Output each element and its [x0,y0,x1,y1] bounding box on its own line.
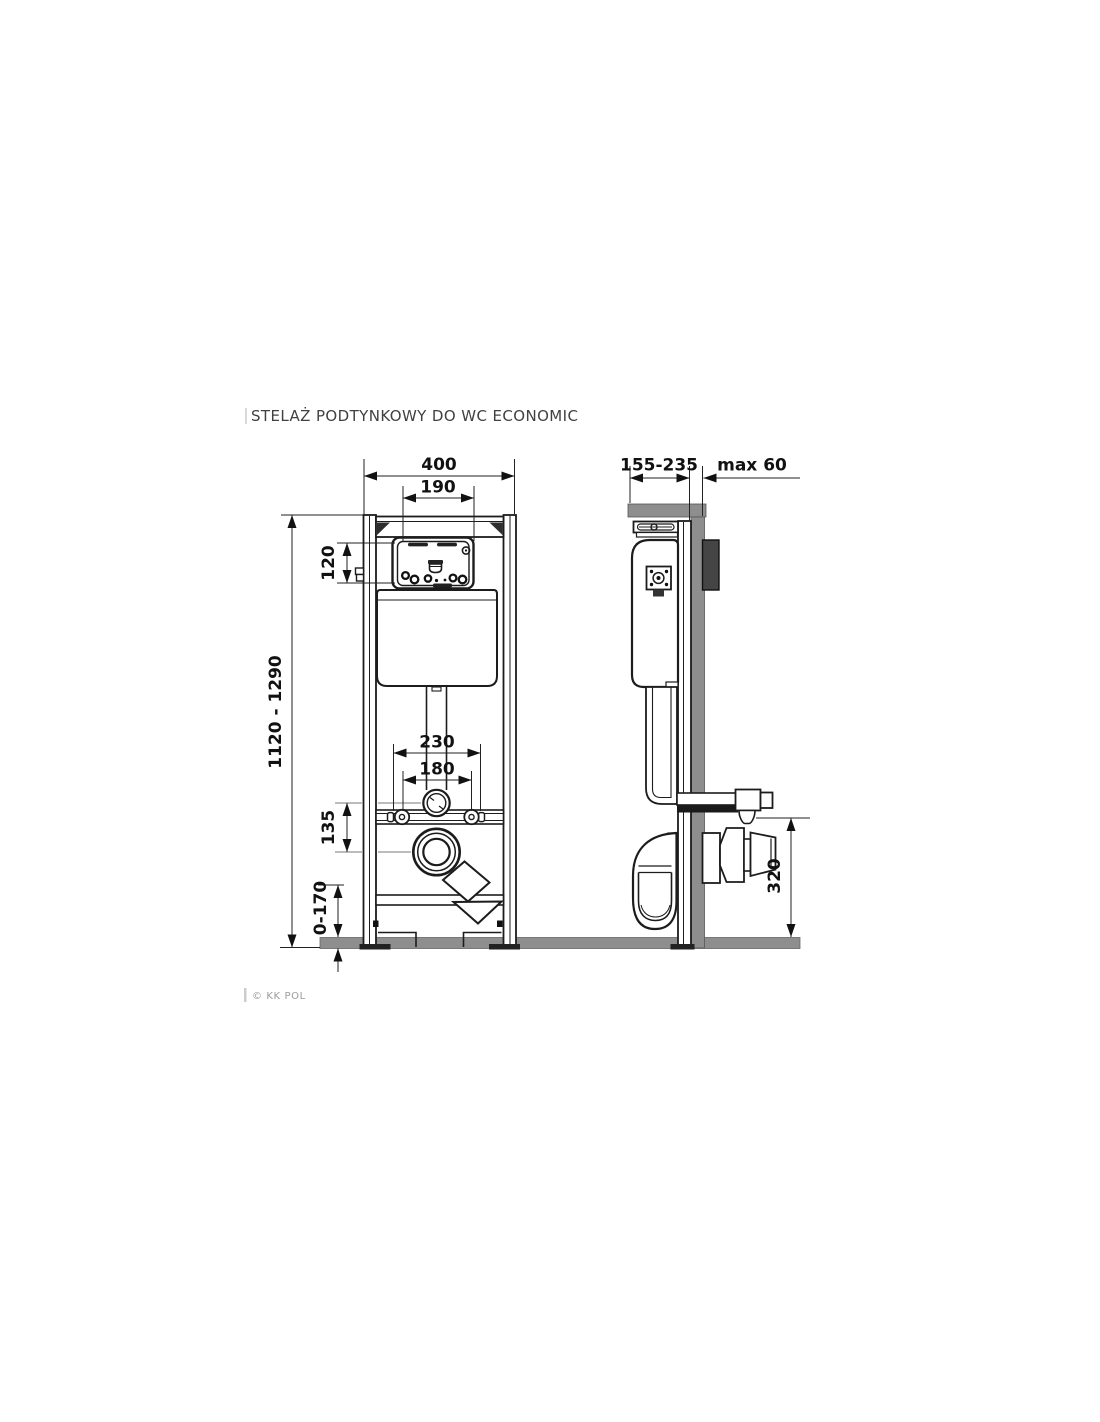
dim-pipe-offset: 135 [319,803,352,852]
flush-valve [428,560,443,573]
dim-panel-width-label: 190 [420,478,456,498]
dim-panel-height-label: 120 [319,545,339,581]
dim-frame-height-label: 1120 - 1290 [266,655,286,769]
dim-outlet-height-label: 320 [765,858,785,894]
inspection-panel [393,538,474,589]
copyright-margin-mark [244,988,247,1002]
page-background [0,0,1100,1422]
technical-drawing: STELAŻ PODTYNKOWY DO WC ECONOMIC [0,0,1100,1422]
panel-slot-right [437,543,457,547]
copyright: © KK POL [252,991,306,1002]
side-cistern [632,540,678,687]
top-rail-bracket [634,522,679,538]
title-margin-mark [245,408,247,424]
ceiling-bracket [628,504,706,517]
panel-bottom-bar [433,584,452,588]
rail-clip [356,568,364,581]
side-frame-rail [678,521,691,948]
wall-bracket-block [703,540,720,590]
dim-leg-adjustment-label: 0-170 [311,881,331,936]
dim-outer-bolt-spacing-label: 230 [419,733,455,753]
drain-outlet [413,829,459,875]
dim-overall-width-label: 400 [421,455,457,475]
dim-pipe-offset-label: 135 [319,810,339,846]
dim-wall-offset-label: max 60 [717,456,787,476]
seal-cone [739,811,755,824]
front-cistern [377,590,497,686]
panel-slot-left [408,543,428,547]
floor [320,938,800,949]
top-crossbar [376,517,504,538]
side-foot [671,944,695,950]
side-flush-duct [646,682,678,804]
drawing-title: STELAŻ PODTYNKOWY DO WC ECONOMIC [251,406,578,425]
dim-bolt-spacing-label: 180 [419,760,455,780]
water-connector [423,790,449,816]
dim-mounting-depth-label: 155-235 [620,456,698,476]
